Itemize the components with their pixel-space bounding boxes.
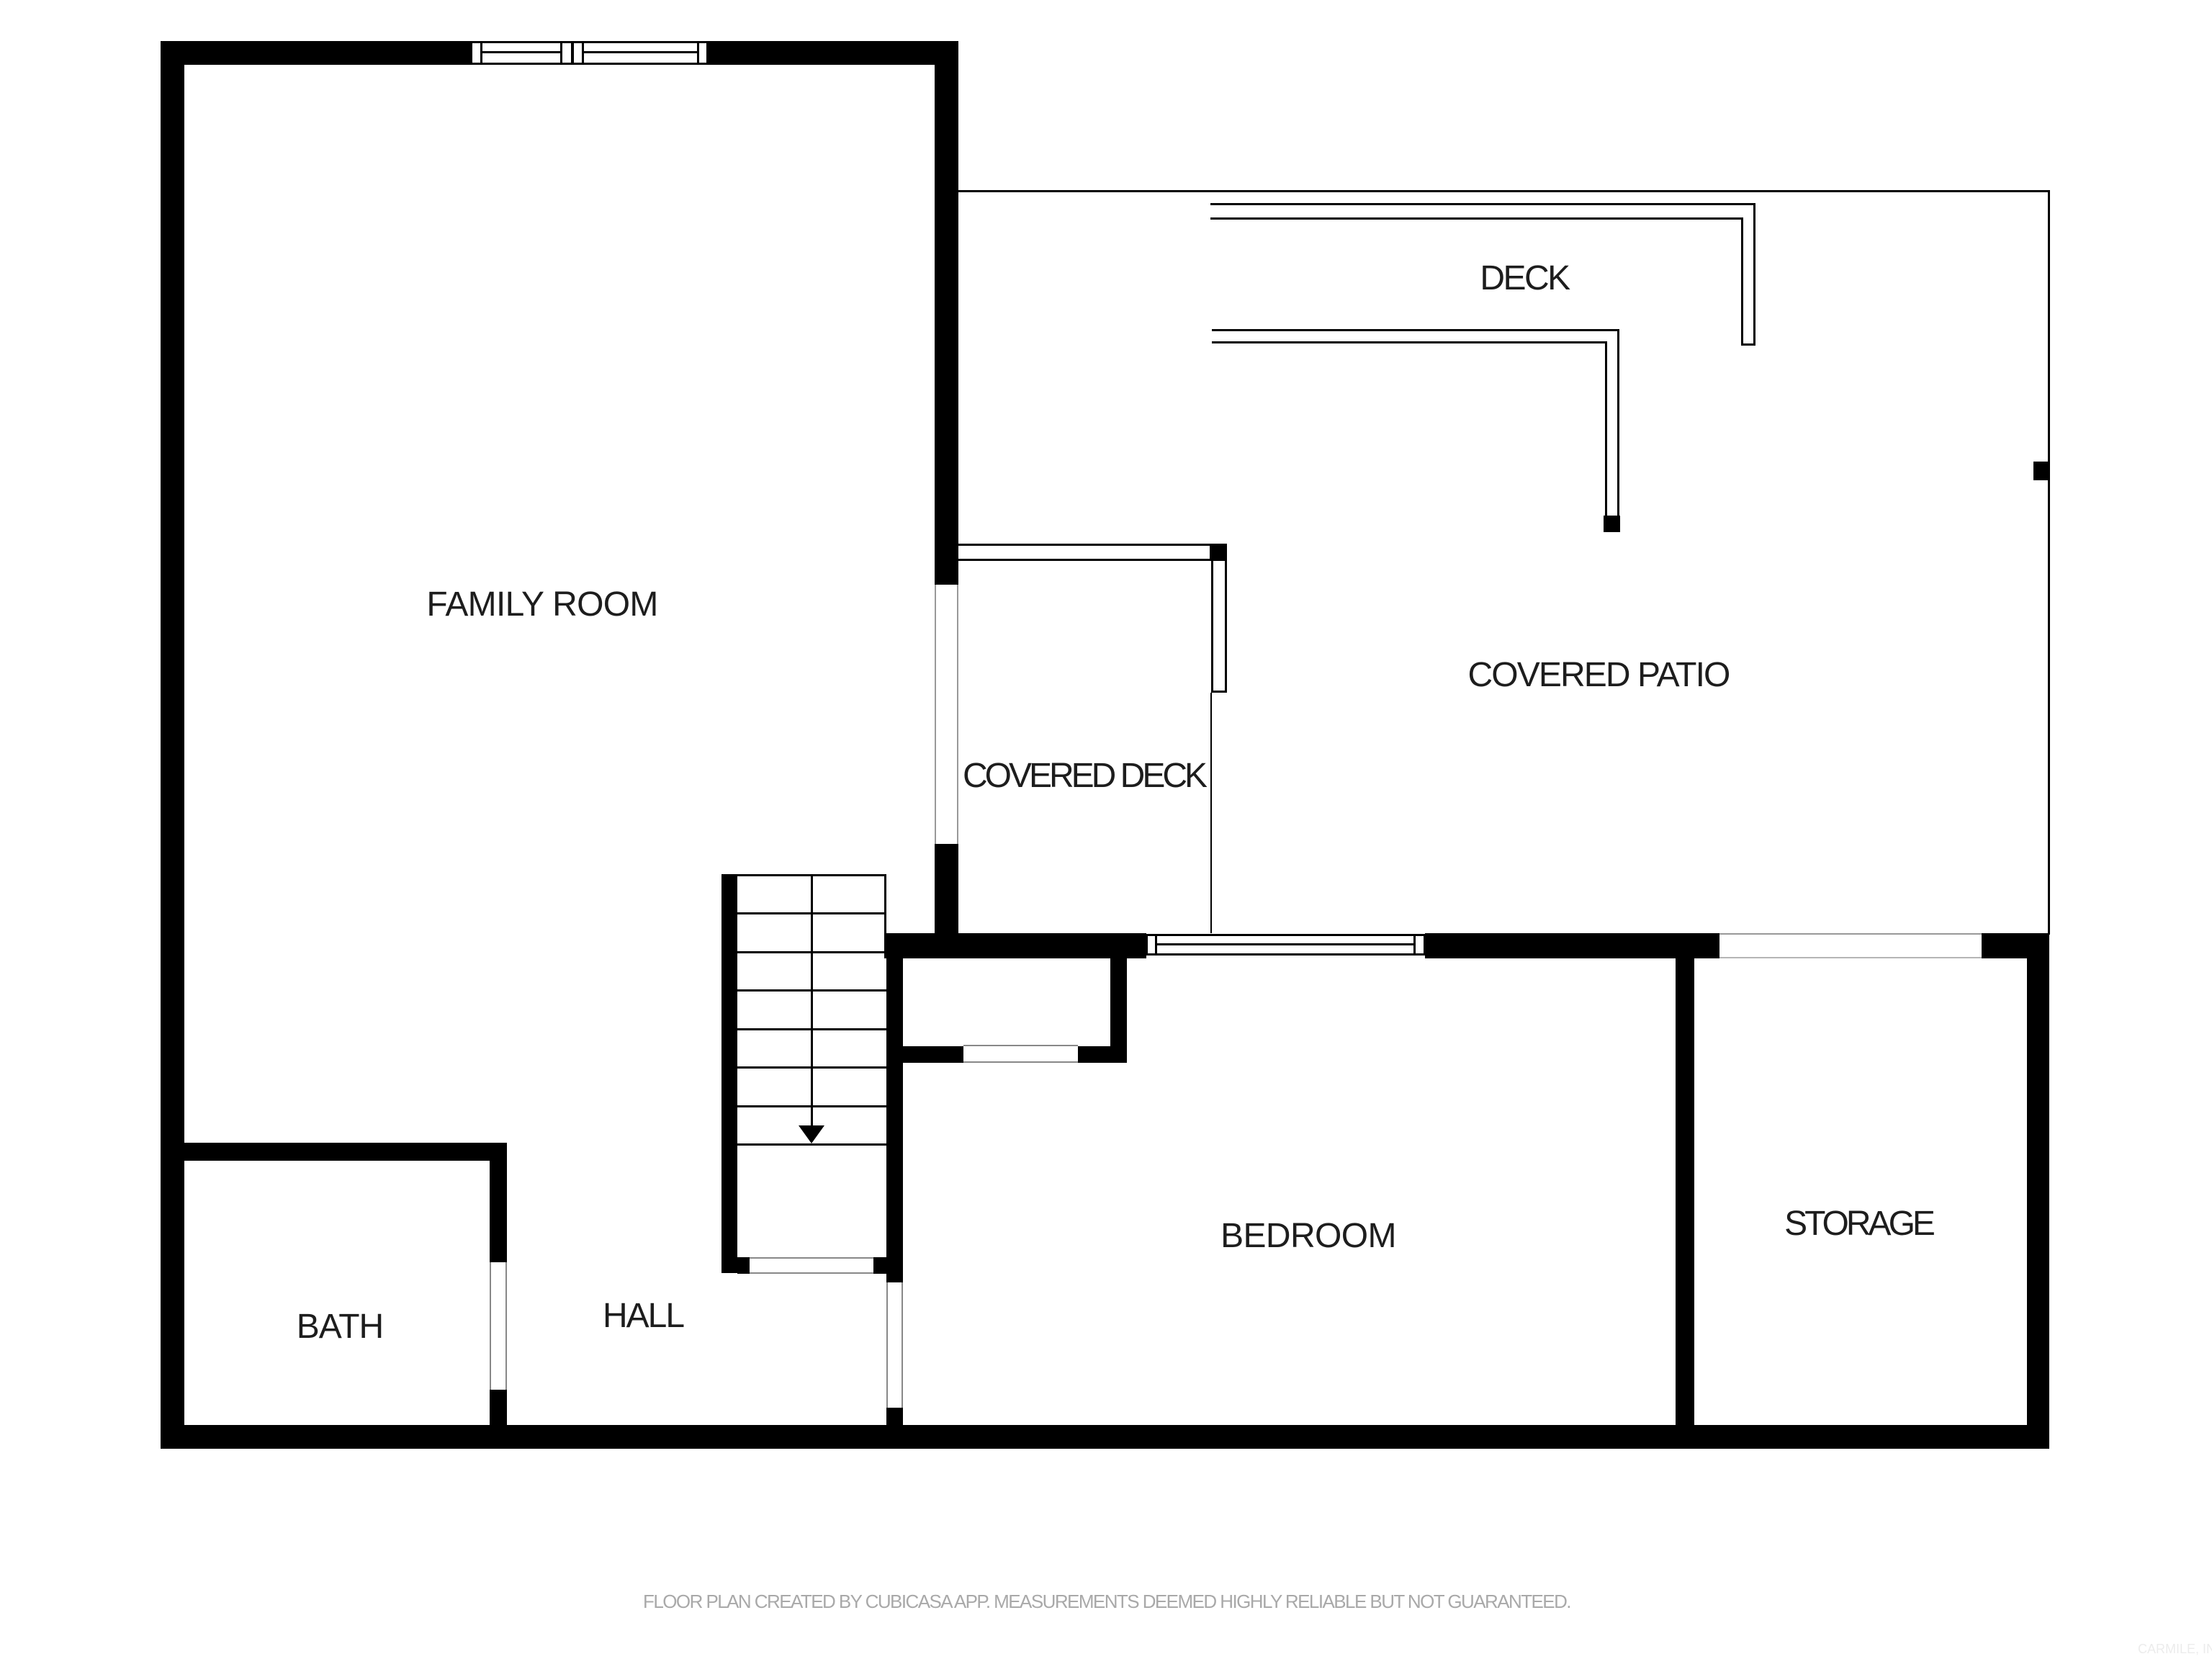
svg-text:COVERED DECK: COVERED DECK: [963, 757, 1208, 795]
svg-text:FLOOR PLAN CREATED BY CUBICASA: FLOOR PLAN CREATED BY CUBICASA APP. MEAS…: [643, 1591, 1570, 1612]
svg-text:BEDROOM: BEDROOM: [1220, 1217, 1396, 1255]
svg-text:STORAGE: STORAGE: [1784, 1205, 1934, 1243]
svg-text:COVERED PATIO: COVERED PATIO: [1468, 656, 1730, 694]
svg-text:BATH: BATH: [297, 1308, 383, 1346]
svg-text:FAMILY ROOM: FAMILY ROOM: [426, 585, 657, 624]
svg-text:HALL: HALL: [603, 1297, 684, 1335]
svg-text:CARMILE, INC: CARMILE, INC: [2138, 1642, 2212, 1656]
